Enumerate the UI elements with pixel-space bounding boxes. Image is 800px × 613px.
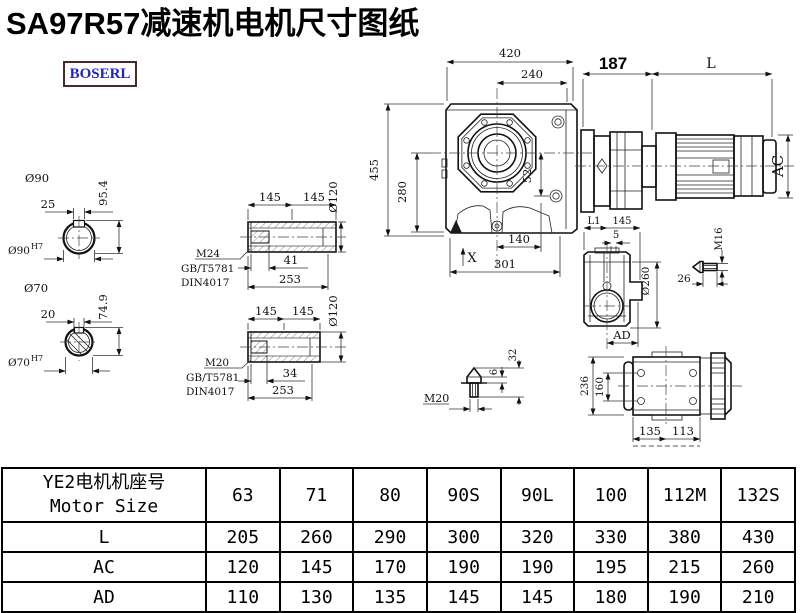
page: SA97R57减速机电机尺寸图纸 BOSERL xyxy=(0,0,800,613)
table-header-motor-size: YE2电机机座号 Motor Size xyxy=(2,468,206,522)
dim-o70: Ø70 xyxy=(24,281,48,295)
column-header: 100 xyxy=(574,468,648,522)
cell-AD-100: 180 xyxy=(574,582,648,612)
cell-AC-112M: 215 xyxy=(648,552,722,582)
dim-hb-253: 253 xyxy=(272,383,294,397)
column-header: 112M xyxy=(648,468,722,522)
column-header: 90L xyxy=(501,468,575,522)
callout-ha-std2: DIN4017 xyxy=(181,277,229,289)
dim-135: 135 xyxy=(639,424,661,438)
dim-hb-o120: Ø120 xyxy=(326,295,340,326)
cell-L-63: 205 xyxy=(206,522,280,552)
dim-140: 140 xyxy=(508,232,530,246)
cell-L-71: 260 xyxy=(280,522,354,552)
technical-drawing: 420 240 187 L 455 280 52 140 xyxy=(0,0,800,462)
callout-hb-thread: M20 xyxy=(205,357,229,369)
m20-plug-detail: M20 6 32 xyxy=(423,349,524,412)
dim-32: 32 xyxy=(508,349,519,362)
dim-240: 240 xyxy=(521,67,543,81)
dim-52: 52 xyxy=(520,169,534,184)
table-row-AD: AD 110 130 135 145 145 180 190 210 xyxy=(2,582,795,612)
dim-301: 301 xyxy=(494,257,516,271)
dim-236: 236 xyxy=(579,376,591,396)
row-label-AD: AD xyxy=(2,582,206,612)
dim-187: 187 xyxy=(599,54,627,73)
cell-AD-90S: 145 xyxy=(427,582,501,612)
callout-ha-thread: M24 xyxy=(196,248,220,260)
dim-95-4: 95.4 xyxy=(96,180,110,206)
cell-AC-63: 120 xyxy=(206,552,280,582)
dim-m16: M16 xyxy=(714,228,725,251)
hollow-shaft-upper: 145 145 Ø120 41 253 M24 GB/T5781 DIN4017 xyxy=(181,181,346,290)
gearbox-side-view: L1 145 5 Ø260 AD xyxy=(584,216,661,350)
table-header-en: Motor Size xyxy=(3,495,205,519)
shaft-section-o70: Ø70 20 74.9 Ø70 H7 xyxy=(8,281,123,374)
dim-113: 113 xyxy=(672,424,694,438)
dim-74-9: 74.9 xyxy=(96,294,110,320)
column-header: 90S xyxy=(427,468,501,522)
dim-160: 160 xyxy=(594,377,606,397)
cell-AD-71: 130 xyxy=(280,582,354,612)
cell-AD-90L: 145 xyxy=(501,582,575,612)
dim-sv-145: 145 xyxy=(612,216,631,227)
column-header: 132S xyxy=(721,468,795,522)
dim-hb-145a: 145 xyxy=(255,304,277,318)
cell-L-90L: 320 xyxy=(501,522,575,552)
dim-sv-5: 5 xyxy=(613,230,619,241)
dim-sv-l1: L1 xyxy=(587,216,600,227)
shaft-section-o90: Ø90 25 95.4 Ø90 H7 xyxy=(8,171,123,262)
cell-L-100: 330 xyxy=(574,522,648,552)
callout-hb-std1: GB/T5781 xyxy=(186,372,239,384)
dim-sv-ad: AD xyxy=(612,328,631,342)
dim-420: 420 xyxy=(499,46,521,60)
column-header: 80 xyxy=(353,468,427,522)
callout-hb-std2: DIN4017 xyxy=(186,386,234,398)
dim-AC: AC xyxy=(769,155,787,178)
cell-AC-90L: 190 xyxy=(501,552,575,582)
motor-size-table: YE2电机机座号 Motor Size 63 71 80 90S 90L 100… xyxy=(1,467,796,613)
hollow-shaft-lower: 145 145 Ø120 34 253 M20 GB/T5781 DIN4017 xyxy=(186,295,348,401)
dim-bore-o70-fit: H7 xyxy=(31,354,43,363)
main-view: 420 240 187 L 455 280 52 140 xyxy=(367,46,794,277)
dim-key-25: 25 xyxy=(41,197,56,211)
dim-455: 455 xyxy=(367,159,381,181)
cell-AC-90S: 190 xyxy=(427,552,501,582)
cell-AD-80: 135 xyxy=(353,582,427,612)
m16-plug-detail: M16 26 xyxy=(677,228,728,287)
dim-m20: M20 xyxy=(424,392,449,405)
dim-hb-34: 34 xyxy=(283,366,298,380)
cell-L-132S: 430 xyxy=(721,522,795,552)
cell-L-112M: 380 xyxy=(648,522,722,552)
dim-26: 26 xyxy=(677,273,691,285)
column-header: 71 xyxy=(280,468,354,522)
table-header-cn: YE2电机机座号 xyxy=(3,471,205,495)
dim-bore-o90: Ø90 xyxy=(8,245,30,257)
dim-L: L xyxy=(706,56,715,72)
dim-X: X xyxy=(467,251,477,266)
dim-280: 280 xyxy=(395,181,409,203)
cell-AD-132S: 210 xyxy=(721,582,795,612)
dim-ha-41: 41 xyxy=(284,253,299,267)
gearbox-top-view: 236 160 135 113 xyxy=(579,346,742,446)
dim-ha-o120: Ø120 xyxy=(326,181,340,212)
dim-ha-145b: 145 xyxy=(303,190,325,204)
row-label-L: L xyxy=(2,522,206,552)
cell-AD-112M: 190 xyxy=(648,582,722,612)
dim-sv-o260: Ø260 xyxy=(640,267,652,296)
cell-L-90S: 300 xyxy=(427,522,501,552)
table-row-L: L 205 260 290 300 320 330 380 430 xyxy=(2,522,795,552)
callout-ha-std1: GB/T5781 xyxy=(181,263,234,275)
table-header-row: YE2电机机座号 Motor Size 63 71 80 90S 90L 100… xyxy=(2,468,795,522)
dim-key-20: 20 xyxy=(41,307,56,321)
dim-bore-o70: Ø70 xyxy=(8,357,30,369)
cell-L-80: 290 xyxy=(353,522,427,552)
dim-ha-253: 253 xyxy=(279,272,301,286)
table-row-AC: AC 120 145 170 190 190 195 215 260 xyxy=(2,552,795,582)
cell-AC-80: 170 xyxy=(353,552,427,582)
cell-AC-132S: 260 xyxy=(721,552,795,582)
dim-6: 6 xyxy=(489,369,500,375)
dim-o90: Ø90 xyxy=(25,171,49,185)
cell-AC-71: 145 xyxy=(280,552,354,582)
cell-AC-100: 195 xyxy=(574,552,648,582)
row-label-AC: AC xyxy=(2,552,206,582)
dim-bore-o90-fit: H7 xyxy=(31,242,43,251)
cell-AD-63: 110 xyxy=(206,582,280,612)
dim-hb-145b: 145 xyxy=(292,304,314,318)
column-header: 63 xyxy=(206,468,280,522)
dim-ha-145a: 145 xyxy=(259,190,281,204)
